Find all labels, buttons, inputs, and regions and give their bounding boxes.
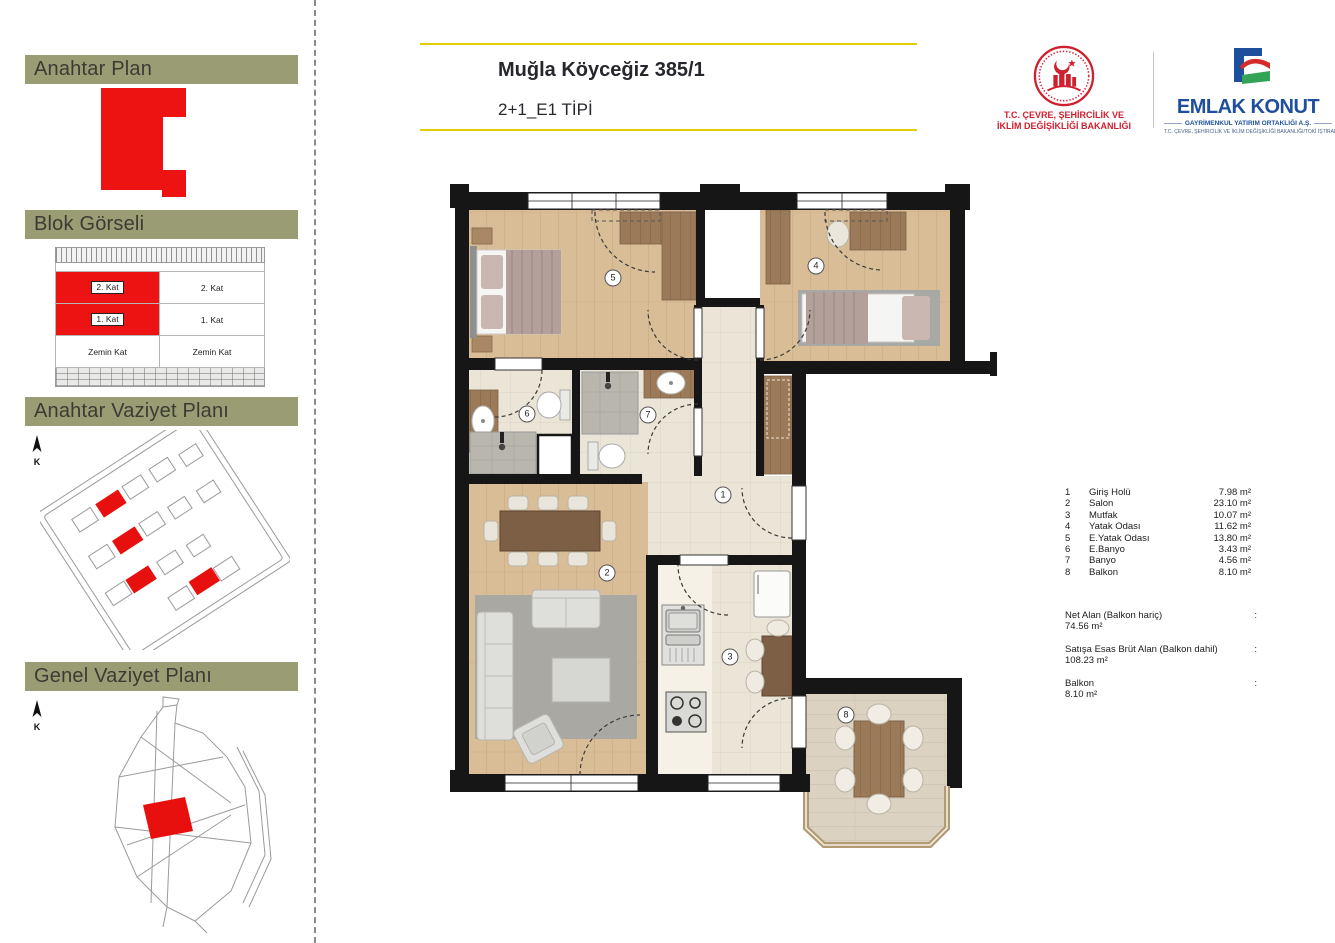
block-label: 2. Kat	[91, 281, 123, 294]
room-marker-1: 1	[715, 487, 732, 504]
title-rule-bottom	[420, 129, 917, 131]
emlak-sub-rule-right	[1314, 123, 1332, 124]
north-label: K	[34, 722, 41, 732]
emlak-konut-wordmark: EMLAK KONUT	[1164, 96, 1332, 119]
block-cell-left-1kat: 1. Kat	[56, 304, 160, 336]
page-subtitle: 2+1_E1 TİPİ	[498, 100, 593, 120]
block-label: 1. Kat	[201, 315, 223, 325]
emlak-subtitle: GAYRİMENKUL YATIRIM ORTAKLIĞI A.Ş.	[1185, 120, 1311, 127]
total-value: 74.56 m²	[1065, 621, 1257, 632]
legend-name: Banyo	[1089, 555, 1195, 566]
ministry-seal-icon	[1033, 45, 1095, 107]
room-marker-6: 6	[519, 406, 536, 423]
section-title-anahtar-vaziyet: Anahtar Vaziyet Planı	[25, 397, 298, 426]
legend-name: Mutfak	[1089, 510, 1195, 521]
block-cell-right-2kat: 2. Kat	[160, 272, 264, 304]
ministry-name-line1: T.C. ÇEVRE, ŞEHİRCİLİK VE	[983, 110, 1145, 121]
legend-name: Balkon	[1089, 567, 1195, 578]
block-foundation-hatch	[55, 368, 265, 387]
block-label: Zemin Kat	[193, 347, 232, 357]
legend-row: 4Yatak Odası11.62 m²	[1065, 521, 1251, 532]
total-balcony-area: Balkon: 8.10 m²	[1065, 678, 1257, 700]
title-rule-top	[420, 43, 917, 45]
legend-num: 2	[1065, 498, 1089, 509]
room-marker-4: 4	[808, 258, 825, 275]
block-label: 1. Kat	[91, 313, 123, 326]
room-marker-8: 8	[838, 707, 855, 724]
legend-name: Giriş Holü	[1089, 487, 1195, 498]
sidebar-divider-dashed	[314, 0, 316, 943]
legend-num: 8	[1065, 567, 1089, 578]
emlak-sub-rule-left	[1164, 123, 1182, 124]
north-arrow-icon	[30, 700, 44, 722]
ministry-name-line2: İKLİM DEĞİŞİKLİĞİ BAKANLIĞI	[983, 121, 1145, 132]
legend-name: Yatak Odası	[1089, 521, 1195, 532]
legend-row: 8Balkon8.10 m²	[1065, 567, 1251, 578]
room-marker-2: 2	[599, 565, 616, 582]
total-colon: :	[1254, 644, 1257, 655]
legend-row: 3Mutfak10.07 m²	[1065, 510, 1251, 521]
legend-name: E.Yatak Odası	[1089, 533, 1195, 544]
total-label: Balkon	[1065, 678, 1094, 689]
legend-area: 8.10 m²	[1195, 567, 1251, 578]
legend-row: 7Banyo4.56 m²	[1065, 555, 1251, 566]
legend-area: 11.62 m²	[1195, 521, 1251, 532]
legend-num: 4	[1065, 521, 1089, 532]
legend-num: 7	[1065, 555, 1089, 566]
block-top-strip	[55, 263, 265, 272]
legend-area: 4.56 m²	[1195, 555, 1251, 566]
block-cell-left-2kat: 2. Kat	[56, 272, 160, 304]
block-cell-left-zemin: Zemin Kat	[56, 336, 160, 368]
block-label: 2. Kat	[201, 283, 223, 293]
legend-name: Salon	[1089, 498, 1195, 509]
block-cell-right-zemin: Zemin Kat	[160, 336, 264, 368]
logo-divider	[1153, 52, 1154, 128]
section-title-anahtar-plan: Anahtar Plan	[25, 55, 298, 84]
legend-row: 5E.Yatak Odası13.80 m²	[1065, 533, 1251, 544]
legend-area: 13.80 m²	[1195, 533, 1251, 544]
block-label: Zemin Kat	[88, 347, 127, 357]
block-cell-right-1kat: 1. Kat	[160, 304, 264, 336]
legend-num: 3	[1065, 510, 1089, 521]
legend-row: 6E.Banyo3.43 m²	[1065, 544, 1251, 555]
section-title-blok-gorseli: Blok Görseli	[25, 210, 298, 239]
legend-area: 10.07 m²	[1195, 510, 1251, 521]
room-marker-3: 3	[722, 649, 739, 666]
total-net-area: Net Alan (Balkon hariç): 74.56 m²	[1065, 610, 1257, 632]
city-location-map	[45, 695, 295, 935]
total-value: 108.23 m²	[1065, 655, 1257, 666]
legend-num: 5	[1065, 533, 1089, 544]
floorplan-sheet: Anahtar Plan Blok Görseli Anahtar Vaziye…	[0, 0, 1335, 943]
area-totals: Net Alan (Balkon hariç): 74.56 m² Satışa…	[1065, 610, 1257, 712]
north-arrow-city: K	[28, 700, 46, 732]
block-elevation-diagram: 2. Kat 2. Kat 1. Kat 1. Kat Zemin Kat Ze…	[55, 247, 265, 387]
total-colon: :	[1254, 678, 1257, 689]
emlak-konut-house-icon	[1225, 48, 1271, 94]
block-roof-hatch	[55, 247, 265, 263]
total-label: Net Alan (Balkon hariç)	[1065, 610, 1162, 621]
hall-wardrobe	[764, 376, 792, 474]
legend-name: E.Banyo	[1089, 544, 1195, 555]
legend-row: 1Giriş Holü7.98 m²	[1065, 487, 1251, 498]
legend-area: 3.43 m²	[1195, 544, 1251, 555]
room-marker-7: 7	[640, 407, 657, 424]
floor-plan: 1 2 3 4 5 6 7 8	[450, 182, 1010, 872]
total-label: Satışa Esas Brüt Alan (Balkon dahil)	[1065, 644, 1218, 655]
total-colon: :	[1254, 610, 1257, 621]
emlak-tagline: T.C. ÇEVRE, ŞEHİRCİLİK VE İKLİM DEĞİŞİKL…	[1164, 129, 1332, 135]
total-gross-area: Satışa Esas Brüt Alan (Balkon dahil): 10…	[1065, 644, 1257, 666]
legend-area: 7.98 m²	[1195, 487, 1251, 498]
page-title: Muğla Köyceğiz 385/1	[498, 59, 705, 82]
legend-area: 23.10 m²	[1195, 498, 1251, 509]
section-title-genel-vaziyet: Genel Vaziyet Planı	[25, 662, 298, 691]
site-key-plan	[40, 430, 290, 650]
total-value: 8.10 m²	[1065, 689, 1257, 700]
legend-num: 6	[1065, 544, 1089, 555]
ministry-logo: T.C. ÇEVRE, ŞEHİRCİLİK VE İKLİM DEĞİŞİKL…	[983, 45, 1145, 132]
key-plan-unit-shape	[95, 86, 195, 201]
room-marker-5: 5	[605, 270, 622, 287]
emlak-konut-logo: EMLAK KONUT GAYRİMENKUL YATIRIM ORTAKLIĞ…	[1164, 48, 1332, 135]
legend-row: 2Salon23.10 m²	[1065, 498, 1251, 509]
floor-plan-drawing	[450, 182, 1010, 872]
legend-num: 1	[1065, 487, 1089, 498]
room-legend: 1Giriş Holü7.98 m² 2Salon23.10 m² 3Mutfa…	[1065, 487, 1251, 578]
